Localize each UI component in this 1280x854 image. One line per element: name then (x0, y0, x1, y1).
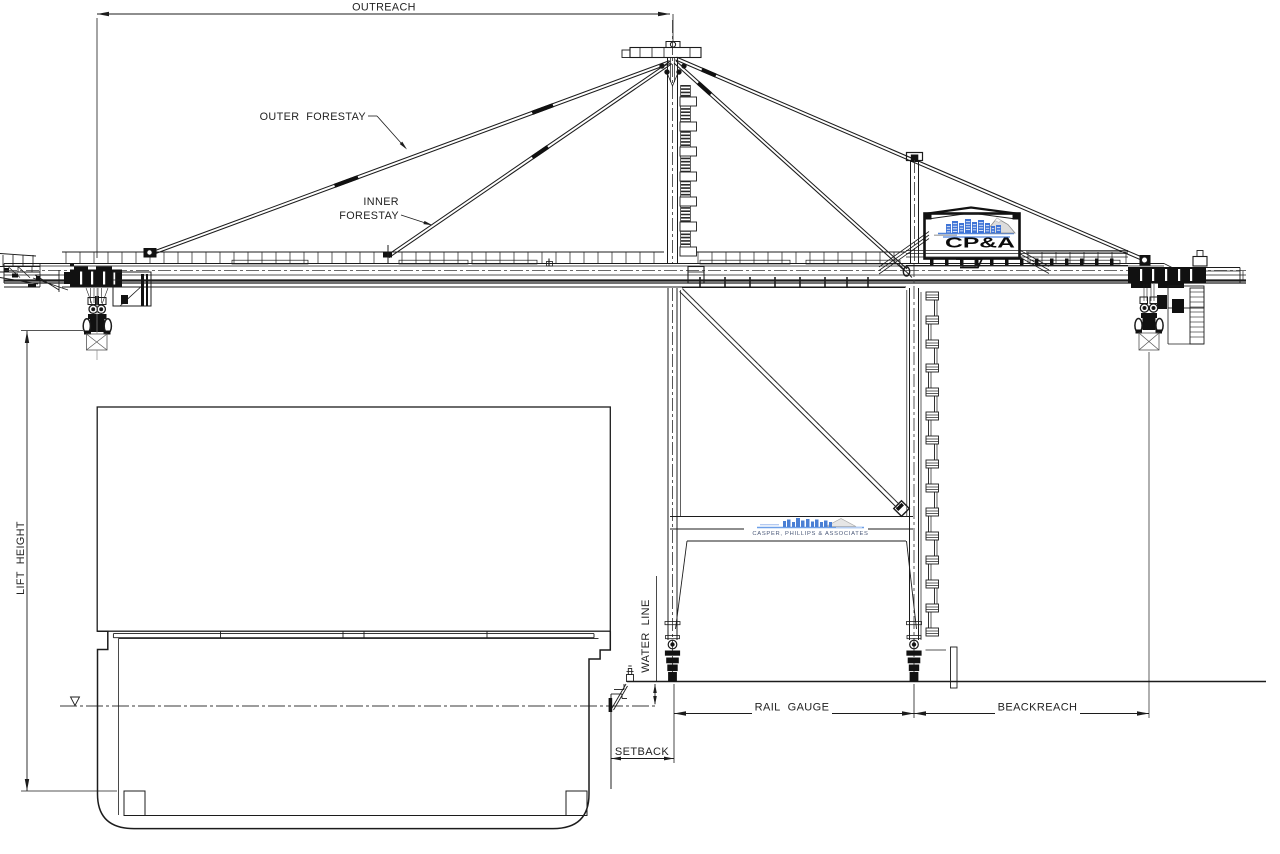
svg-text:OUTER FORESTAY: OUTER FORESTAY (260, 111, 366, 123)
svg-text:CP&A: CP&A (945, 235, 1015, 252)
svg-text:RAIL GAUGE: RAIL GAUGE (755, 702, 830, 714)
svg-text:CASPER, PHILLIPS & ASSOCIATES: CASPER, PHILLIPS & ASSOCIATES (752, 531, 868, 537)
svg-text:SETBACK: SETBACK (615, 746, 669, 758)
svg-text:WATER LINE: WATER LINE (640, 599, 652, 672)
svg-text:BEACKREACH: BEACKREACH (998, 702, 1078, 714)
svg-text:OUTREACH: OUTREACH (352, 2, 416, 14)
svg-text:INNER: INNER (363, 196, 399, 208)
svg-text:LIFT HEIGHT: LIFT HEIGHT (15, 521, 27, 595)
svg-text:FORESTAY: FORESTAY (339, 210, 399, 222)
